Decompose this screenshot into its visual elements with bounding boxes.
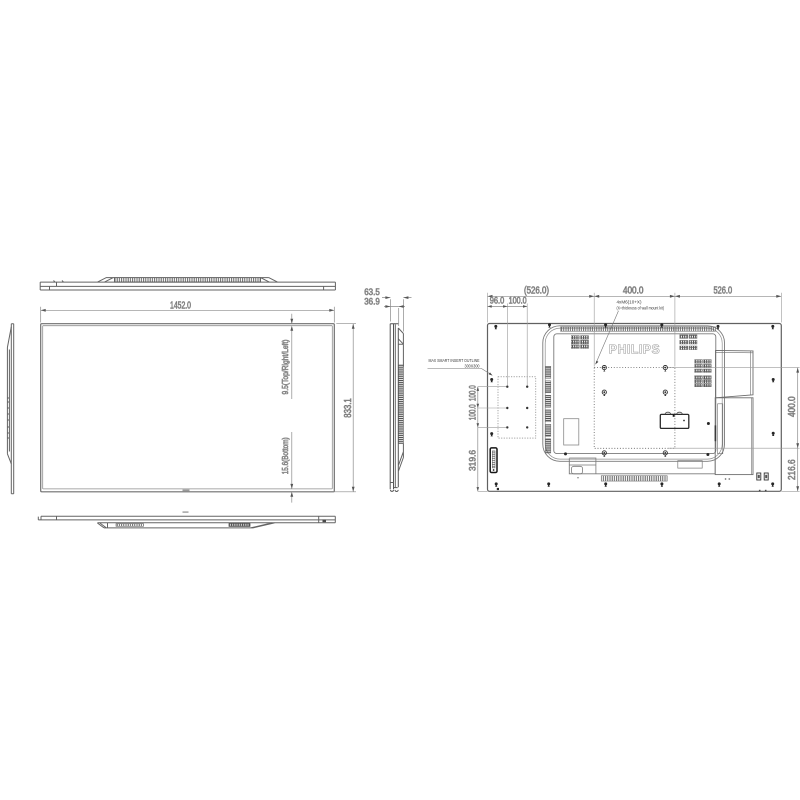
- svg-text:833.1: 833.1: [343, 398, 354, 418]
- svg-text:4xM6(10+X): 4xM6(10+X): [617, 300, 642, 305]
- svg-text:(X=thickness of wall mount kit: (X=thickness of wall mount kit): [617, 306, 665, 311]
- svg-text:400.0: 400.0: [787, 396, 798, 417]
- svg-text:100.0: 100.0: [509, 296, 527, 306]
- svg-text:100.0: 100.0: [467, 404, 477, 420]
- svg-text:100.0: 100.0: [467, 385, 477, 401]
- svg-text:526.0: 526.0: [713, 285, 732, 296]
- svg-text:300X300: 300X300: [465, 363, 480, 368]
- svg-text:MAX SMART INSERT OUTLINE: MAX SMART INSERT OUTLINE: [429, 358, 480, 363]
- svg-text:(526.0): (526.0): [524, 285, 549, 296]
- svg-text:96.0: 96.0: [490, 296, 505, 306]
- svg-text:36.9: 36.9: [364, 297, 380, 308]
- svg-text:319.6: 319.6: [467, 450, 477, 471]
- svg-text:1452.0: 1452.0: [170, 301, 191, 312]
- svg-text:PHILIPS: PHILIPS: [609, 342, 661, 356]
- svg-text:216.6: 216.6: [787, 459, 798, 480]
- svg-text:15.6(Bottom): 15.6(Bottom): [280, 437, 290, 474]
- svg-text:9.5(Top/Right/Left): 9.5(Top/Right/Left): [280, 339, 290, 394]
- svg-text:400.0: 400.0: [623, 285, 644, 296]
